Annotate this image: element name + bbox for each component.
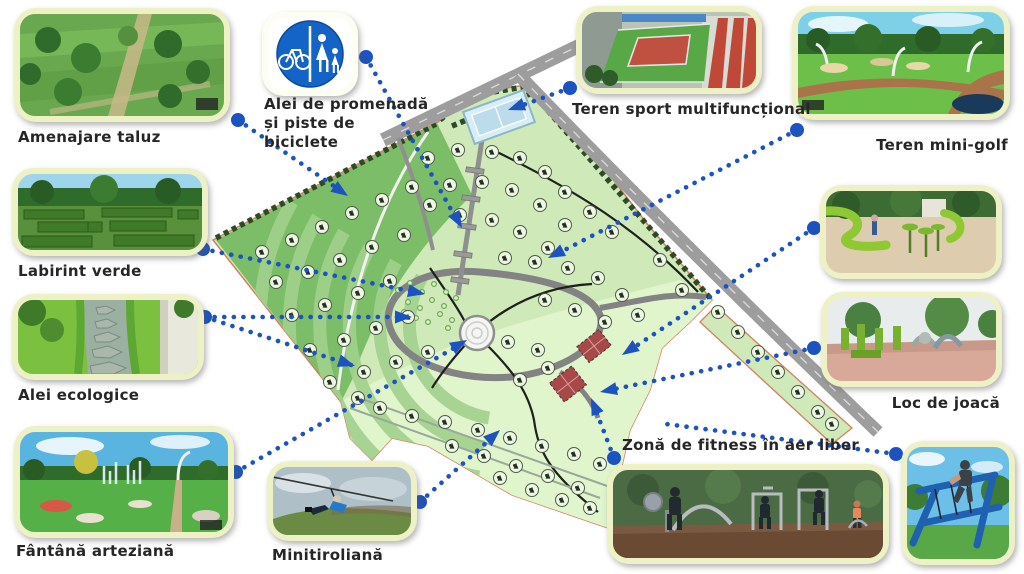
playground-upper-card (820, 185, 1002, 279)
park-infographic: { "callouts": { "taluz": { "label": "Ame… (0, 0, 1024, 574)
fitness-label: Zonă de fitness în aer liber (622, 436, 859, 454)
playground-lower-photo (827, 298, 996, 381)
eco-label: Alei ecologice (18, 386, 139, 404)
labirint-card (12, 168, 208, 256)
promenade-label: Alei de promenadă și piste de biciclete (264, 95, 434, 151)
minigolf-label: Teren mini-golf (808, 136, 1008, 154)
sport-card (576, 6, 762, 94)
fountain-photo (20, 432, 228, 532)
zipline-card (267, 461, 417, 541)
sport-photo (582, 12, 756, 88)
playground-upper-photo (826, 191, 996, 273)
bike-pedestrian-sign-icon (268, 18, 352, 90)
climbing-card (901, 441, 1015, 565)
taluz-label: Amenajare taluz (18, 128, 161, 146)
climbing-photo (907, 447, 1009, 559)
eco-photo (18, 300, 198, 374)
sport-label: Teren sport multifuncțional (572, 100, 772, 118)
central-plaza (460, 316, 494, 350)
eco-card (12, 294, 204, 380)
fitness-card (607, 464, 889, 564)
playground-lower-card (821, 292, 1002, 387)
minigolf-card (792, 6, 1010, 120)
fountain-label: Fântână arteziană (16, 542, 174, 560)
zipline-label: Minitiroliană (272, 546, 383, 564)
minigolf-photo (798, 12, 1004, 114)
taluz-photo (20, 14, 224, 116)
labirint-photo (18, 174, 202, 250)
playground-label: Loc de joacă (800, 394, 1000, 412)
taluz-card (14, 8, 230, 122)
fountain-card (14, 426, 234, 538)
promenade-card (262, 12, 358, 96)
zipline-photo (273, 467, 411, 535)
labirint-label: Labirint verde (18, 262, 142, 280)
fitness-photo (613, 470, 883, 558)
